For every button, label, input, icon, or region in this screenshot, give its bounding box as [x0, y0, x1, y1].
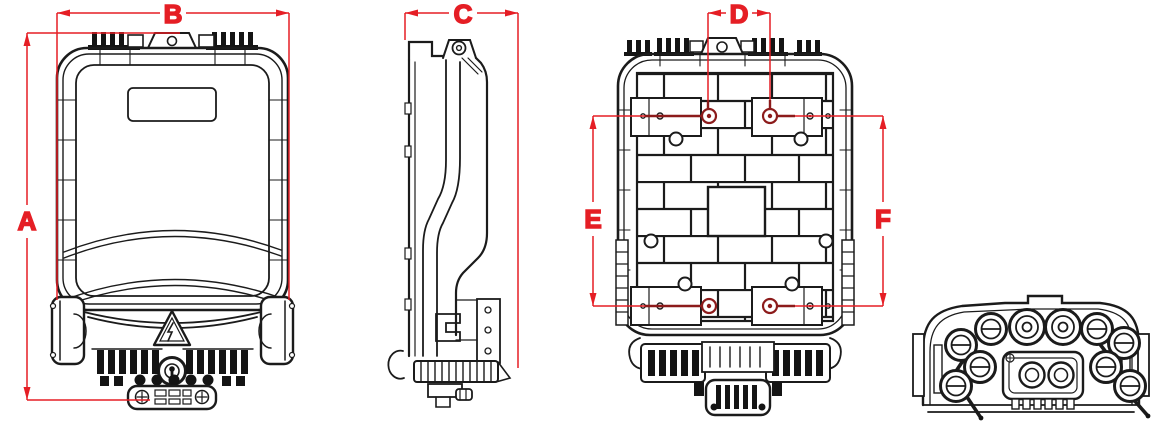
- side-bottom-comb: [414, 361, 498, 382]
- dimension-e: E: [584, 116, 645, 306]
- dimension-a-label: A: [18, 206, 37, 236]
- back-bottom-ports: [629, 338, 841, 382]
- dim-arrow-left-icon: [708, 10, 721, 17]
- front-view: [51, 32, 295, 409]
- back-view: [616, 38, 854, 415]
- dim-arrow-down-icon: [880, 293, 887, 306]
- dim-arrow-right-icon: [757, 10, 770, 17]
- dim-arrow-left-icon: [57, 10, 70, 17]
- center-nut-port: [1046, 310, 1081, 345]
- drawing-canvas: A B C D E F: [0, 0, 1176, 433]
- dimension-c-label: C: [454, 0, 473, 29]
- dim-arrow-left-icon: [405, 10, 418, 17]
- center-nut-port: [1010, 310, 1045, 345]
- side-tray-plate: [456, 299, 500, 363]
- dimension-b-label: B: [164, 0, 183, 29]
- front-mounting-tab: [148, 33, 196, 48]
- front-cover-arcs: [64, 230, 281, 306]
- back-bottom-stack: [694, 380, 782, 415]
- splitter-port-block: [1003, 352, 1083, 409]
- side-cable-channel: [423, 60, 460, 356]
- bottom-view: [913, 296, 1150, 420]
- dim-arrow-down-icon: [24, 387, 31, 400]
- side-top-tab: [443, 40, 476, 58]
- dim-arrow-up-icon: [880, 116, 887, 129]
- dim-arrow-right-icon: [276, 10, 289, 17]
- front-bottom-bracket: [128, 386, 216, 409]
- dim-arrow-up-icon: [590, 116, 597, 129]
- front-label-plate: [128, 88, 216, 121]
- side-view: [388, 40, 510, 407]
- dimension-f-label: F: [875, 204, 891, 234]
- dim-arrow-down-icon: [590, 293, 597, 306]
- dimension-e-label: E: [584, 204, 601, 234]
- dim-arrow-right-icon: [505, 10, 518, 17]
- back-center-plate: [708, 187, 765, 236]
- front-right-latch: [259, 297, 295, 364]
- technical-drawing: A B C D E F: [0, 0, 1176, 433]
- front-left-latch: [51, 297, 87, 364]
- dimension-d-label: D: [730, 0, 749, 29]
- dim-arrow-up-icon: [24, 33, 31, 46]
